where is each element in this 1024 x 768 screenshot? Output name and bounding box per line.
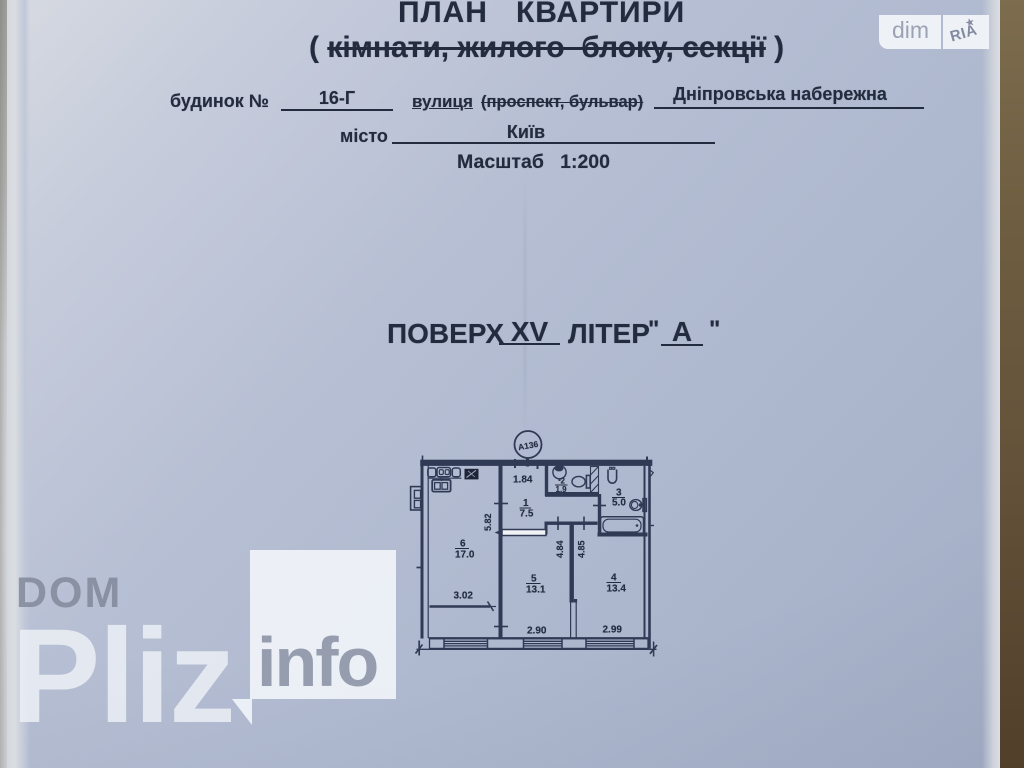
svg-text:5: 5 <box>531 574 537 585</box>
svg-text:7.5: 7.5 <box>520 509 534 520</box>
svg-text:4: 4 <box>611 573 617 584</box>
svg-text:1: 1 <box>523 498 529 509</box>
svg-text:А136: А136 <box>517 439 539 452</box>
svg-text:6: 6 <box>460 539 466 550</box>
svg-text:2.90: 2.90 <box>527 626 547 637</box>
svg-text:13.4: 13.4 <box>607 584 627 595</box>
svg-text:5.0: 5.0 <box>612 498 626 509</box>
svg-text:3.02: 3.02 <box>454 591 474 602</box>
svg-text:13.1: 13.1 <box>526 585 546 596</box>
svg-text:1.9: 1.9 <box>556 485 568 494</box>
svg-text:4.85: 4.85 <box>577 540 587 558</box>
svg-text:5.82: 5.82 <box>483 513 493 531</box>
svg-text:4.84: 4.84 <box>555 540 565 558</box>
svg-text:1.84: 1.84 <box>513 475 533 486</box>
svg-text:2.99: 2.99 <box>603 625 623 636</box>
svg-text:17.0: 17.0 <box>455 550 475 561</box>
